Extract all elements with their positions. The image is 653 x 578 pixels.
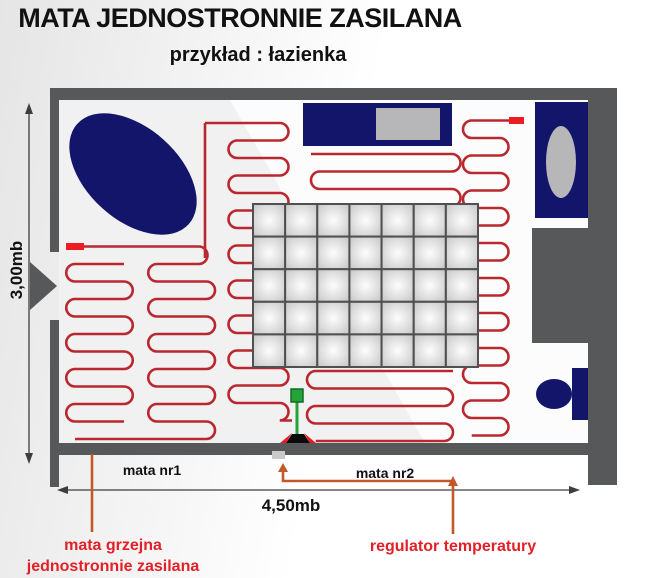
tile bbox=[253, 269, 285, 302]
tile bbox=[317, 302, 349, 335]
tile bbox=[285, 269, 317, 302]
width-dimension-label: 4,50mb bbox=[262, 496, 321, 516]
tile bbox=[446, 237, 478, 270]
tile bbox=[446, 204, 478, 237]
heating-mat-callout-line1: mata grzejna bbox=[64, 537, 162, 554]
tile-mat bbox=[253, 204, 478, 367]
tile bbox=[414, 302, 446, 335]
tile bbox=[285, 204, 317, 237]
tile bbox=[349, 237, 381, 270]
height-dimension-label: 3,00mb bbox=[7, 241, 27, 300]
page-subtitle: przykład : łazienka bbox=[170, 44, 347, 67]
tile bbox=[414, 237, 446, 270]
bathroom-heating-diagram: MATA JEDNOSTRONNIE ZASILANA przykład : ł… bbox=[0, 0, 653, 578]
tile bbox=[414, 269, 446, 302]
tile bbox=[382, 204, 414, 237]
tile bbox=[253, 204, 285, 237]
tile bbox=[317, 334, 349, 367]
cable-end-terminal-mat2 bbox=[509, 117, 524, 124]
tile bbox=[446, 269, 478, 302]
heating-mat-callout-line2: jednostronnie zasilana bbox=[27, 558, 199, 575]
tile bbox=[349, 334, 381, 367]
tile bbox=[382, 302, 414, 335]
tile bbox=[253, 237, 285, 270]
tile bbox=[446, 334, 478, 367]
tile bbox=[414, 334, 446, 367]
mat1-label: mata nr1 bbox=[123, 462, 181, 478]
floor-plan bbox=[0, 0, 653, 578]
tile bbox=[285, 334, 317, 367]
dimension-width-line bbox=[57, 486, 580, 494]
tile bbox=[382, 269, 414, 302]
washing-machine bbox=[303, 103, 452, 146]
tile bbox=[285, 237, 317, 270]
cable-end-terminal-mat1 bbox=[66, 243, 84, 250]
tile bbox=[253, 302, 285, 335]
tile bbox=[253, 334, 285, 367]
tile bbox=[349, 204, 381, 237]
tile bbox=[317, 237, 349, 270]
regulator-callout: regulator temperatury bbox=[370, 536, 536, 557]
mat2-label: mata nr2 bbox=[356, 465, 414, 481]
tile bbox=[317, 269, 349, 302]
regulator-wall-box bbox=[272, 451, 285, 459]
door-arrow-icon bbox=[30, 262, 57, 310]
tile bbox=[349, 302, 381, 335]
tile bbox=[414, 204, 446, 237]
tile bbox=[317, 204, 349, 237]
tile bbox=[349, 269, 381, 302]
tile bbox=[382, 334, 414, 367]
tile bbox=[446, 302, 478, 335]
sink bbox=[535, 102, 588, 218]
tile bbox=[285, 302, 317, 335]
heating-mat-callout: mata grzejna jednostronnie zasilana bbox=[27, 535, 199, 577]
page-title: MATA JEDNOSTRONNIE ZASILANA bbox=[18, 3, 462, 34]
tile bbox=[382, 237, 414, 270]
